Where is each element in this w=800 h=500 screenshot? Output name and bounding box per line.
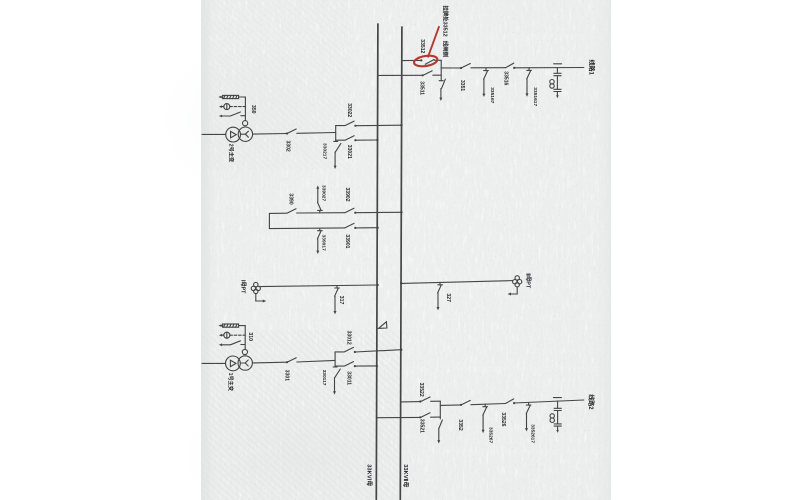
svg-text:310: 310 [247, 332, 253, 341]
svg-text:33512: 33512 [419, 39, 425, 53]
svg-text:3302: 3302 [285, 141, 291, 152]
svg-text:线闸侧: 线闸侧 [442, 41, 450, 58]
svg-text:33902: 33902 [344, 188, 350, 202]
svg-text:33KVⅠ母: 33KVⅠ母 [365, 464, 373, 486]
svg-text:339027: 339027 [320, 185, 326, 201]
svg-text:33511: 33511 [419, 81, 425, 95]
svg-text:3351: 3351 [459, 80, 465, 91]
svg-text:327: 327 [445, 293, 451, 302]
svg-text:335167: 335167 [489, 87, 495, 103]
svg-text:33901: 33901 [344, 234, 350, 248]
svg-text:33522: 33522 [418, 383, 424, 397]
svg-text:1号主变: 1号主变 [227, 373, 235, 392]
svg-text:330117: 330117 [321, 370, 327, 386]
svg-text:33521: 33521 [419, 419, 425, 433]
svg-text:33011: 33011 [345, 371, 351, 385]
svg-text:线路1: 线路1 [587, 60, 595, 76]
svg-text:3301: 3301 [284, 370, 290, 381]
svg-text:3352: 3352 [457, 419, 463, 430]
svg-text:335267: 335267 [487, 427, 493, 443]
svg-text:挂牌处33512: 挂牌处33512 [442, 6, 450, 37]
svg-text:33012: 33012 [345, 331, 351, 345]
svg-text:33KVⅡ母: 33KVⅡ母 [402, 464, 410, 487]
svg-text:3352617: 3352617 [530, 424, 536, 443]
svg-text:线路2: 线路2 [587, 394, 595, 410]
svg-text:Ⅰ母PT: Ⅰ母PT [239, 280, 247, 295]
svg-text:33021: 33021 [346, 145, 352, 159]
svg-text:3351617: 3351617 [532, 87, 538, 106]
svg-text:2号主变: 2号主变 [227, 144, 235, 163]
svg-text:33526: 33526 [500, 412, 506, 426]
svg-text:330217: 330217 [321, 143, 327, 159]
svg-text:339017: 339017 [320, 235, 326, 251]
svg-text:Ⅱ母PT: Ⅱ母PT [525, 273, 533, 289]
svg-text:317: 317 [338, 296, 344, 305]
svg-text:33516: 33516 [502, 71, 508, 85]
svg-text:350: 350 [250, 105, 256, 114]
svg-text:33022: 33022 [346, 103, 352, 117]
svg-text:3390: 3390 [288, 193, 294, 204]
